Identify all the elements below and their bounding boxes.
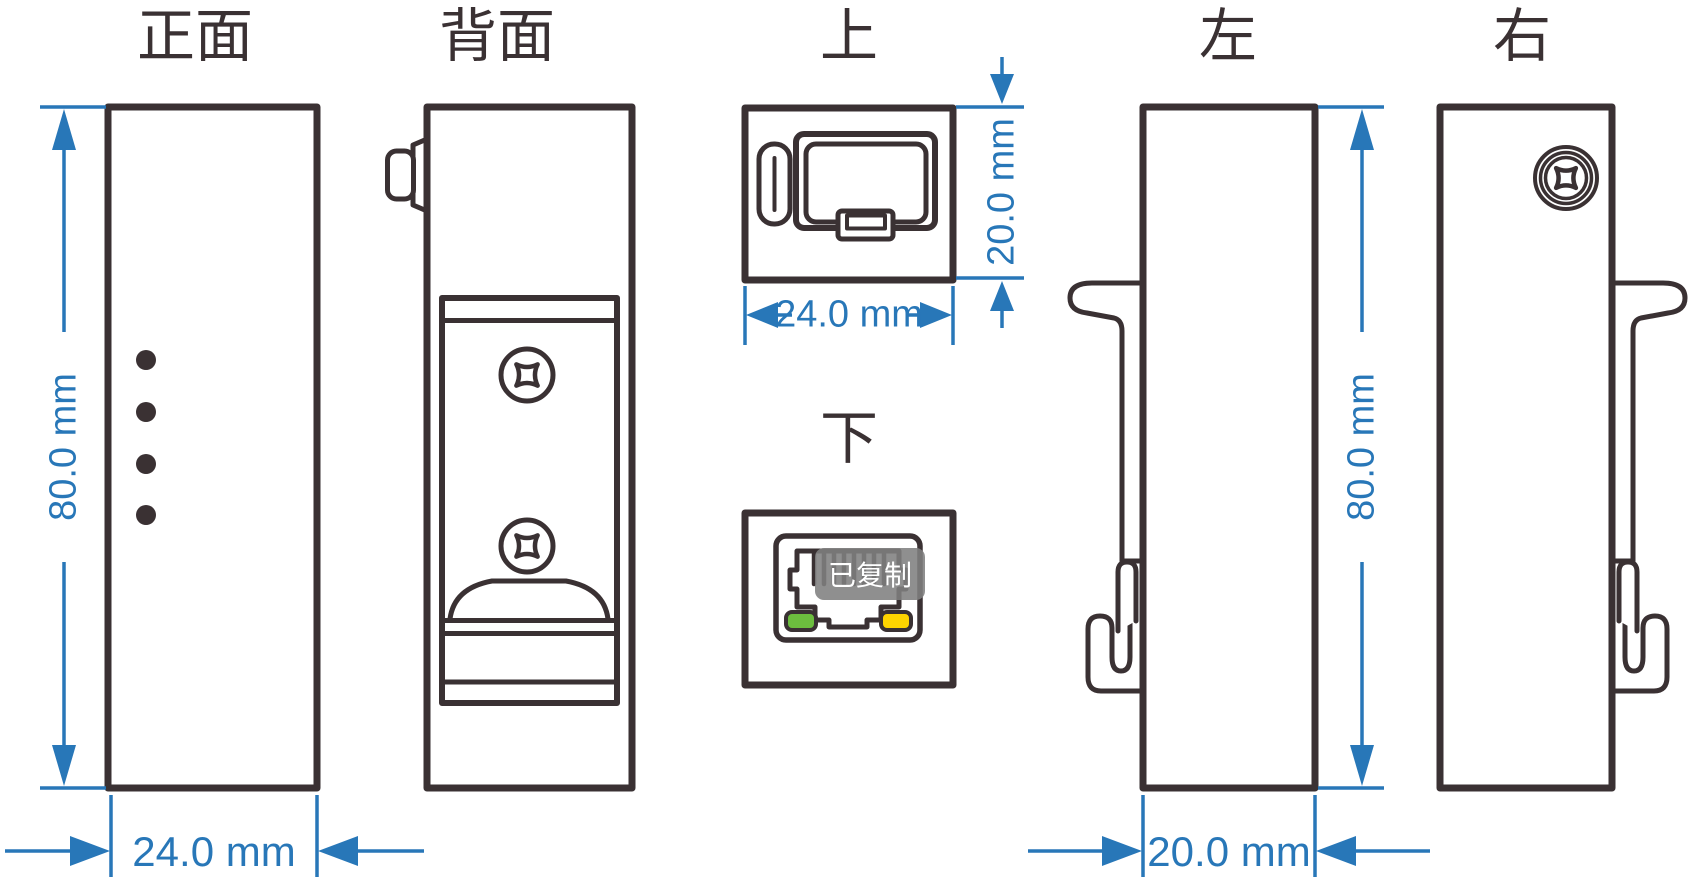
dim-left-width-label: 20.0 mm (1147, 828, 1310, 876)
back-side-latch-button (388, 151, 414, 199)
front-led-hole-2 (136, 402, 156, 422)
dim-left-height-label: 80.0 mm (1341, 373, 1384, 521)
dim-front-height-label: 80.0 mm (43, 373, 86, 521)
right-view-title: 右 (1462, 6, 1582, 68)
phillips-screw-icon (501, 349, 553, 401)
left-view-outline (1143, 107, 1315, 788)
top-view (745, 108, 953, 280)
rj45-yellow-led (881, 612, 911, 630)
front-view (108, 107, 317, 788)
din-rail-hook-upper (1612, 283, 1685, 561)
din-rail-clips-mirrored (1612, 283, 1685, 691)
top-port-latch-inner (847, 216, 885, 229)
front-led-hole-1 (136, 350, 156, 370)
bottom-view-title: 下 (789, 408, 909, 470)
din-rail-tab (1118, 562, 1136, 631)
din-rail-tab (1619, 562, 1637, 631)
front-view-outline (108, 107, 317, 788)
dim-top-depth-label: 20.0 mm (981, 118, 1024, 266)
back-view-title: 背面 (397, 6, 597, 68)
back-view (388, 107, 633, 788)
left-view (1070, 107, 1315, 788)
phillips-screw-icon (501, 520, 553, 572)
din-rail-hook-upper (1070, 283, 1143, 561)
right-view-outline (1440, 107, 1612, 788)
front-view-title: 正面 (95, 6, 295, 68)
right-view (1440, 107, 1685, 788)
left-view-title: 左 (1168, 6, 1288, 68)
copied-toast: 已复制 (815, 548, 925, 600)
dim-front-width-label: 24.0 mm (132, 828, 295, 876)
front-led-hole-3 (136, 454, 156, 474)
mechanical-drawing-canvas: 正面 背面 上 下 左 右 80.0 mm 24.0 mm 24.0 mm 20… (0, 0, 1690, 883)
top-view-title: 上 (789, 6, 909, 68)
rj45-green-led (786, 612, 816, 630)
front-led-hole-4 (136, 505, 156, 525)
phillips-screw-rings-icon (1535, 147, 1597, 209)
copied-toast-text: 已复制 (828, 554, 912, 594)
dim-top-width-label: 24.0 mm (775, 294, 923, 337)
